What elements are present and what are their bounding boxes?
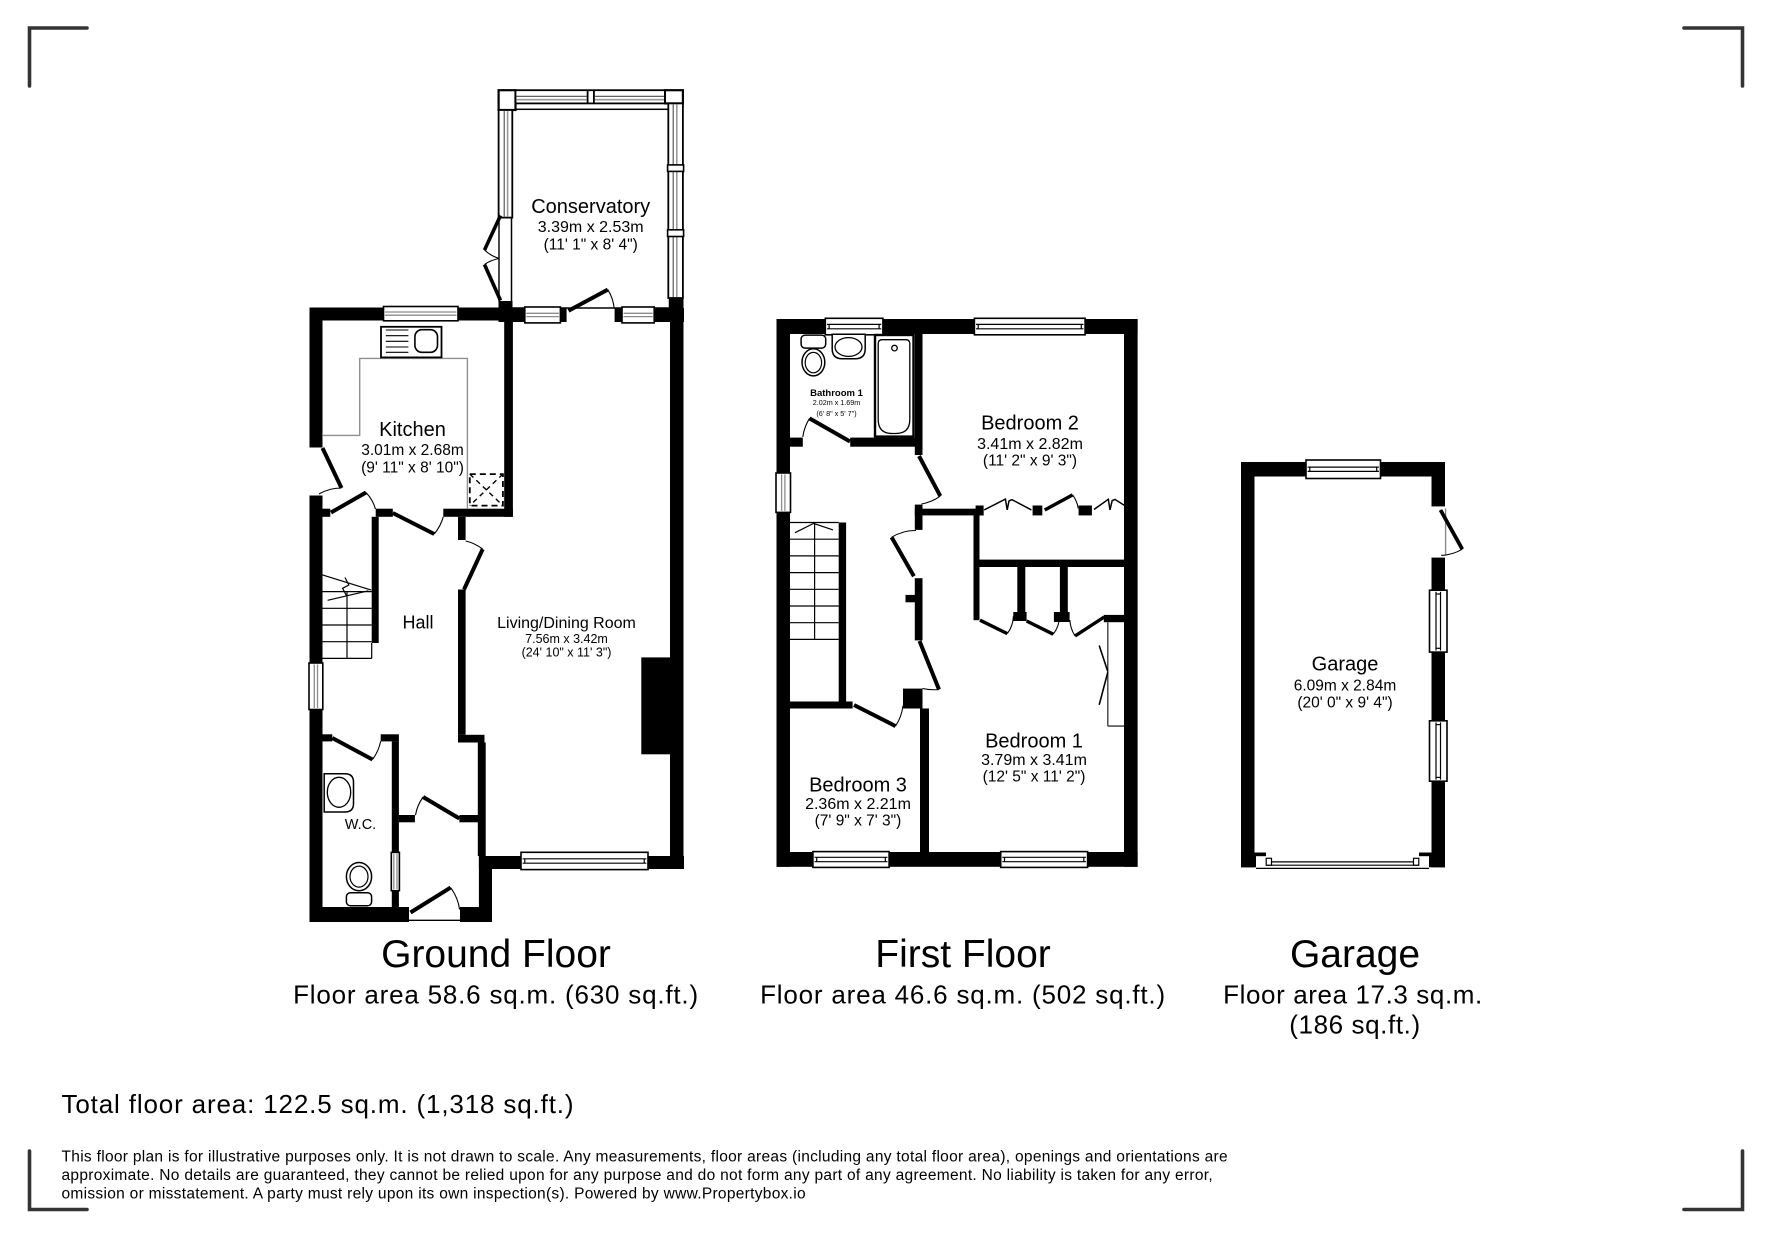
svg-text:6.09m x 2.84m: 6.09m x 2.84m (1294, 678, 1397, 695)
svg-text:omission or misstatement. A pa: omission or misstatement. A party must r… (62, 1186, 806, 1203)
svg-text:Kitchen: Kitchen (379, 419, 446, 441)
svg-text:Living/Dining Room: Living/Dining Room (497, 615, 636, 632)
svg-text:Hall: Hall (402, 613, 433, 633)
svg-text:(20' 0" x 9' 4"): (20' 0" x 9' 4") (1297, 695, 1392, 712)
svg-text:(186 sq.ft.): (186 sq.ft.) (1289, 1010, 1420, 1040)
svg-text:W.C.: W.C. (345, 817, 376, 833)
svg-text:approximate. No details are gu: approximate. No details are guaranteed, … (62, 1167, 1213, 1184)
svg-text:7.56m x 3.42m: 7.56m x 3.42m (525, 632, 608, 646)
svg-text:Bedroom 2: Bedroom 2 (981, 413, 1079, 435)
svg-text:(7' 9" x 7' 3"): (7' 9" x 7' 3") (815, 813, 902, 830)
svg-text:(11' 2" x 9' 3"): (11' 2" x 9' 3") (983, 452, 1077, 469)
svg-text:(12' 5" x 11' 2"): (12' 5" x 11' 2") (983, 769, 1086, 786)
svg-text:(6' 8" x 5' 7"): (6' 8" x 5' 7") (816, 409, 856, 418)
svg-text:2.02m x 1.69m: 2.02m x 1.69m (813, 398, 861, 407)
svg-text:Garage: Garage (1312, 654, 1379, 676)
svg-text:2.36m x 2.21m: 2.36m x 2.21m (805, 796, 911, 813)
svg-text:Ground Floor: Ground Floor (381, 933, 611, 976)
svg-text:Garage: Garage (1290, 933, 1420, 976)
svg-text:(11' 1" x 8' 4"): (11' 1" x 8' 4") (544, 237, 638, 254)
svg-text:Bedroom 1: Bedroom 1 (985, 731, 1083, 753)
svg-text:(9' 11" x 8' 10"): (9' 11" x 8' 10") (361, 460, 464, 477)
svg-text:3.79m x 3.41m: 3.79m x 3.41m (981, 752, 1087, 769)
svg-text:3.39m x 2.53m: 3.39m x 2.53m (538, 219, 644, 236)
svg-text:This floor plan is for illustr: This floor plan is for illustrative purp… (62, 1149, 1228, 1166)
svg-text:Conservatory: Conservatory (531, 196, 650, 218)
svg-text:(24' 10" x 11' 3"): (24' 10" x 11' 3") (522, 646, 612, 660)
svg-text:Floor area 58.6 sq.m. (630 sq.: Floor area 58.6 sq.m. (630 sq.ft.) (293, 979, 699, 1009)
svg-text:3.01m x 2.68m: 3.01m x 2.68m (361, 442, 464, 459)
svg-text:First Floor: First Floor (875, 933, 1051, 976)
svg-text:Floor area 17.3 sq.m.: Floor area 17.3 sq.m. (1223, 979, 1483, 1009)
svg-text:Floor area 46.6 sq.m. (502 sq.: Floor area 46.6 sq.m. (502 sq.ft.) (760, 979, 1166, 1009)
svg-text:Bedroom 3: Bedroom 3 (809, 775, 907, 797)
svg-text:3.41m x 2.82m: 3.41m x 2.82m (977, 436, 1083, 453)
svg-text:Total floor area: 122.5 sq.m.: Total floor area: 122.5 sq.m. (1,318 sq.… (62, 1089, 575, 1119)
